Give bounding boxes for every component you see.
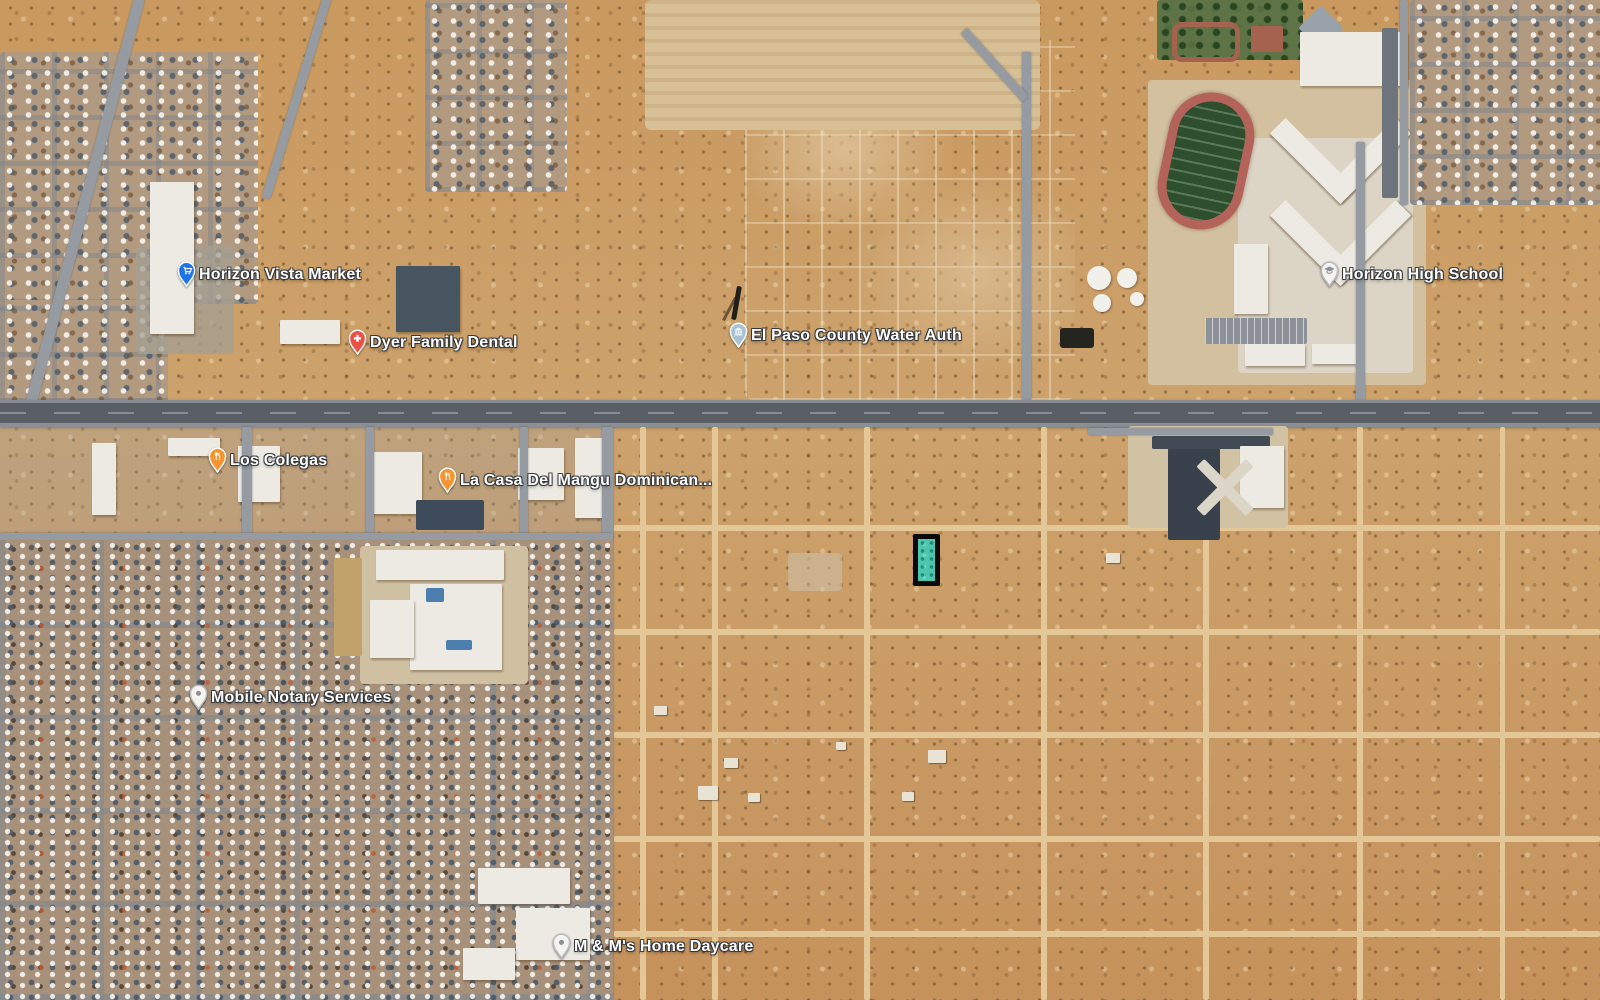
school-icon — [1319, 260, 1340, 287]
map-marker-los-colegas[interactable]: Los Colegas — [207, 446, 327, 473]
civic-building-icon — [728, 321, 749, 348]
map-marker-horizon-high-school[interactable]: Horizon High School — [1319, 260, 1503, 287]
map-marker-dyer-family-dental[interactable]: Dyer Family Dental — [347, 328, 518, 355]
restaurant-icon — [207, 446, 228, 473]
marker-label: El Paso County Water Auth — [751, 327, 962, 345]
map-marker-m-and-ms-home-daycare[interactable]: M & M's Home Daycare — [551, 932, 753, 959]
map-marker-la-casa-del-mangu[interactable]: La Casa Del Mangu Dominican... — [437, 466, 712, 493]
marker-label: Horizon Vista Market — [199, 266, 361, 284]
marker-label: La Casa Del Mangu Dominican... — [460, 472, 712, 490]
marker-label: Dyer Family Dental — [370, 334, 518, 352]
map-marker-mobile-notary-services[interactable]: Mobile Notary Services — [188, 683, 391, 710]
marker-label: M & M's Home Daycare — [574, 938, 753, 956]
map-marker-el-paso-county-water-auth[interactable]: El Paso County Water Auth — [728, 321, 962, 348]
marker-label: Mobile Notary Services — [211, 689, 391, 707]
map-marker-horizon-vista-market[interactable]: Horizon Vista Market — [176, 260, 361, 287]
marker-label: Los Colegas — [230, 452, 327, 470]
generic-place-icon — [551, 932, 572, 959]
generic-place-icon — [188, 683, 209, 710]
satellite-map-canvas[interactable]: Horizon Vista MarketDyer Family DentalEl… — [0, 0, 1600, 1000]
medical-cross-icon — [347, 328, 368, 355]
restaurant-icon — [437, 466, 458, 493]
marker-label: Horizon High School — [1342, 266, 1503, 284]
markers-layer: Horizon Vista MarketDyer Family DentalEl… — [0, 0, 1600, 1000]
shopping-cart-icon — [176, 260, 197, 287]
